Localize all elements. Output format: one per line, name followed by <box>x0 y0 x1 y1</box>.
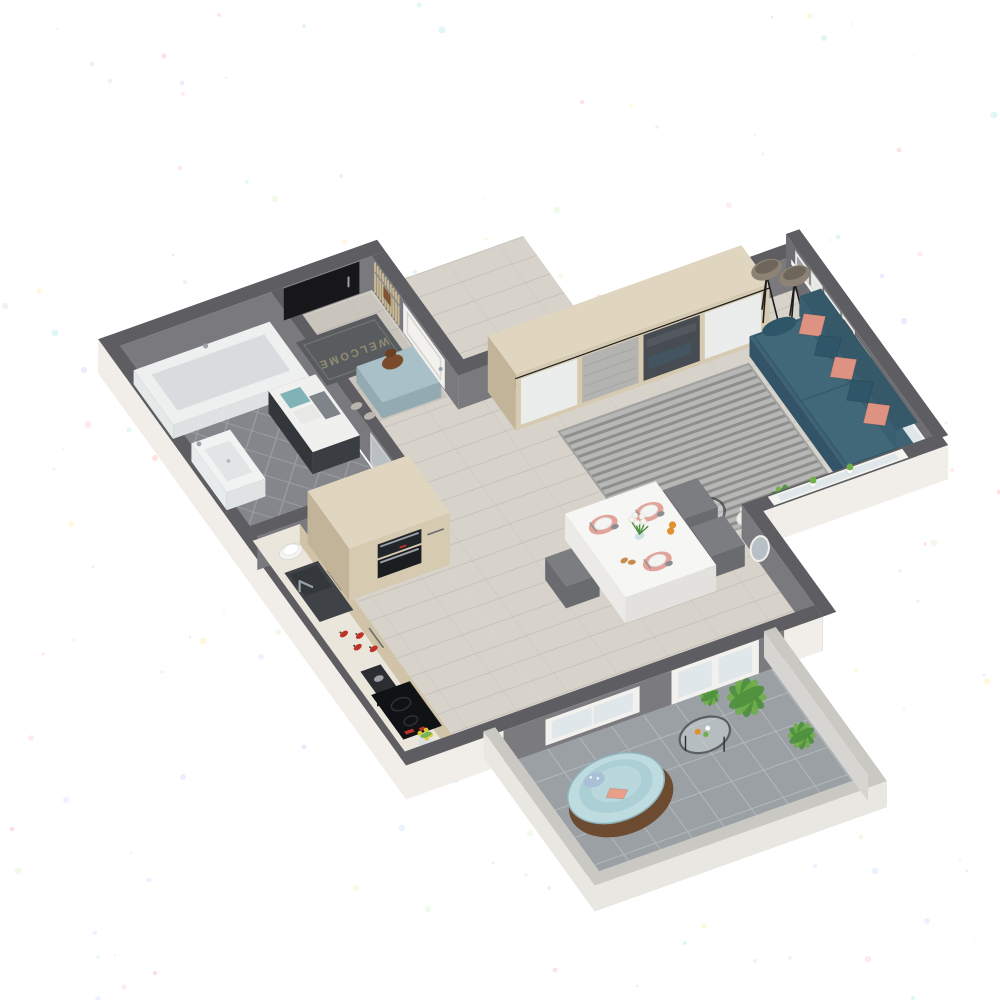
sofa-cushion <box>863 403 890 426</box>
basin-faucet-icon <box>197 442 202 447</box>
peach-pillow <box>606 788 628 799</box>
fruit-bowl <box>695 729 701 735</box>
interior-door-handle-icon <box>439 367 443 371</box>
sofa-cushion <box>830 357 857 380</box>
tub-faucet-icon <box>203 343 208 348</box>
sill-plant <box>810 477 817 487</box>
sill-plant <box>847 464 854 474</box>
sofa-cushion <box>814 335 841 358</box>
sofa-cushion <box>799 314 826 337</box>
isometric-scene: WELCOME <box>0 0 1000 1000</box>
floorplan-render: WELCOME <box>0 0 1000 1000</box>
sofa-cushion <box>847 380 874 403</box>
